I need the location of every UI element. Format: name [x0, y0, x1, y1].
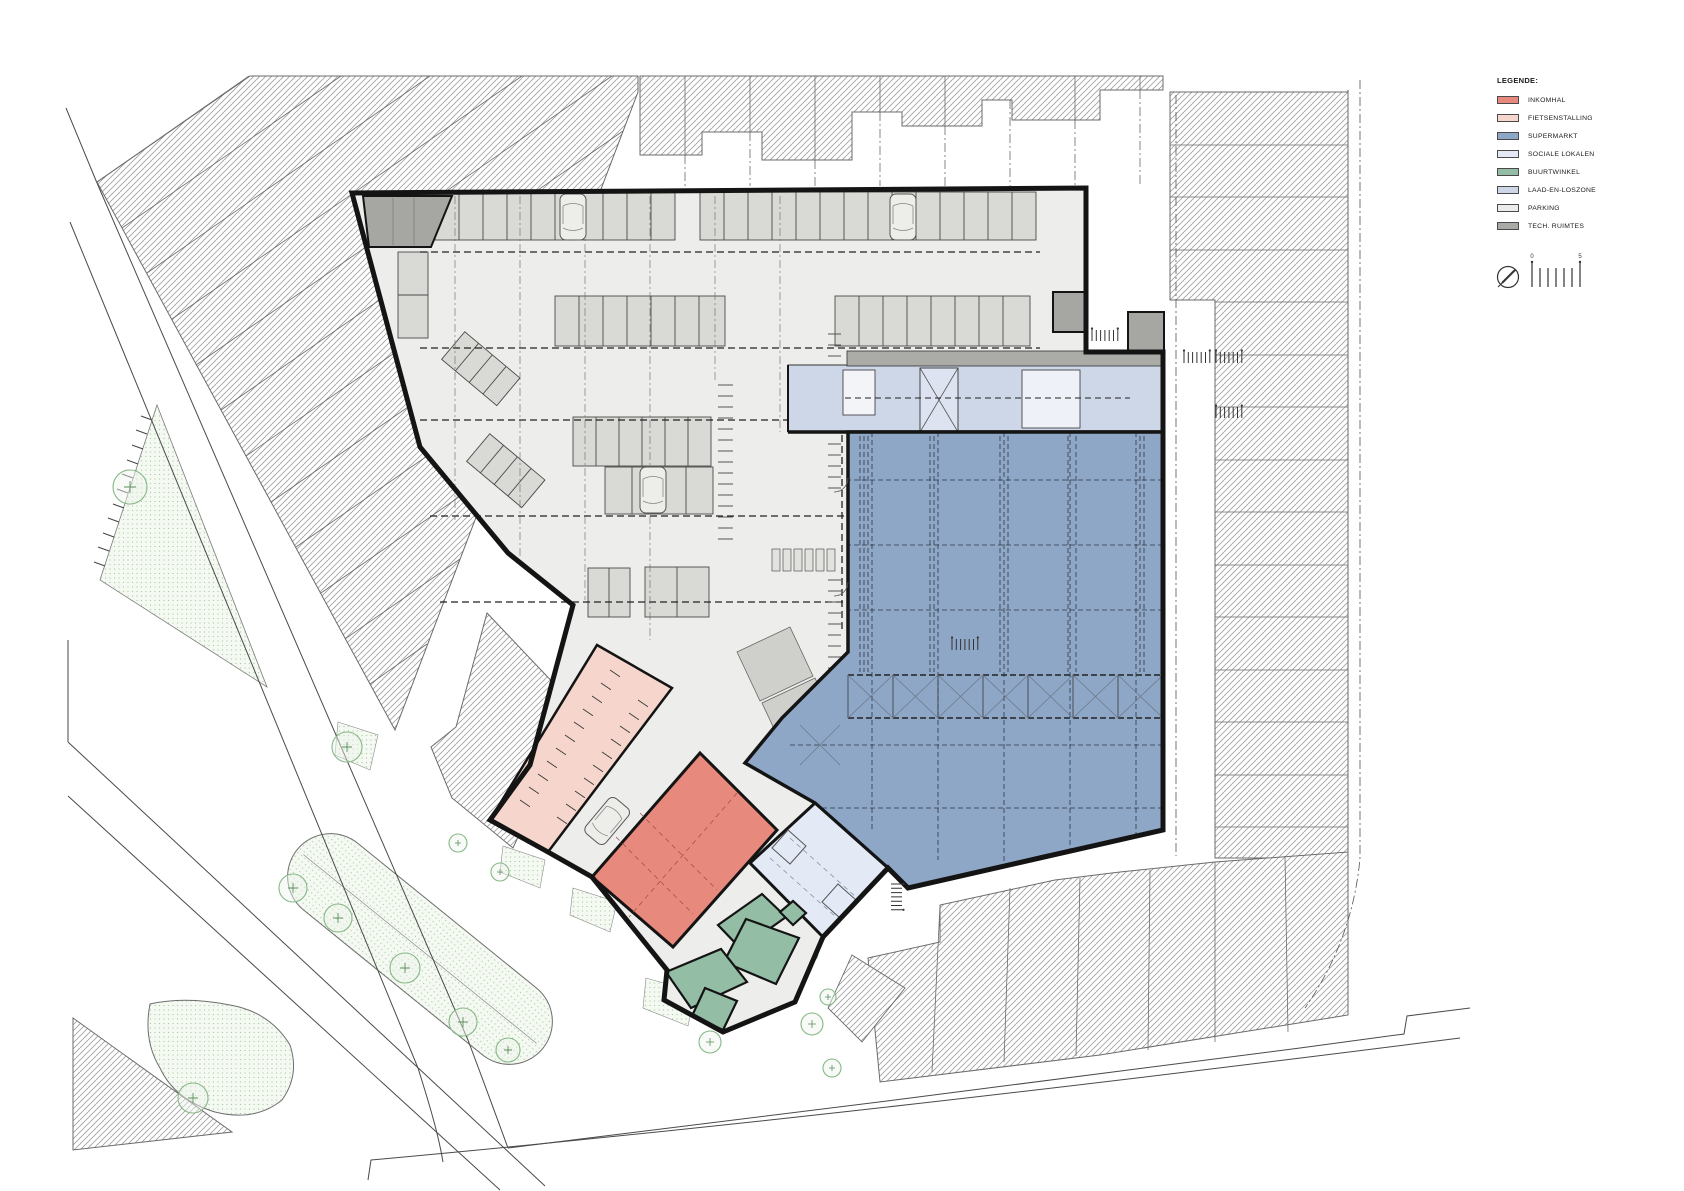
tree-icon	[801, 1013, 823, 1035]
tree-icon	[496, 1038, 520, 1062]
scale-bar: 0 5	[1530, 254, 1582, 287]
tree-icon	[491, 863, 509, 881]
legend-item-label: PARKING	[1528, 205, 1560, 212]
scale-tick-label: 0	[1530, 254, 1534, 260]
legend-item-label: BUURTWINKEL	[1528, 169, 1580, 176]
legend-item-label: SUPERMARKT	[1528, 133, 1578, 140]
legend-item-sociale-lokalen: SOCIALE LOKALEN	[1497, 150, 1682, 158]
legend-item-label: FIETSENSTALLING	[1528, 115, 1593, 122]
tree-icon	[324, 904, 352, 932]
legend-item-label: SOCIALE LOKALEN	[1528, 151, 1594, 158]
legend-item-buurtwinkel: BUURTWINKEL	[1497, 168, 1682, 176]
legend-swatch	[1497, 204, 1519, 212]
legend-swatch	[1497, 132, 1519, 140]
legend-swatch	[1497, 186, 1519, 194]
legend-item-parking: PARKING	[1497, 204, 1682, 212]
tree-icon	[390, 953, 420, 983]
tree-icon	[699, 1031, 721, 1053]
legend-swatch	[1497, 222, 1519, 230]
site-plan-drawing: 0 5	[0, 0, 1684, 1191]
tree-icon	[449, 1008, 477, 1036]
scale-tick-label: 5	[1578, 254, 1582, 260]
legend-item-inkomhal: INKOMHAL	[1497, 96, 1682, 104]
legend-item-laad-en-loszone: LAAD-EN-LOSZONE	[1497, 186, 1682, 194]
legend-item-supermarkt: SUPERMARKT	[1497, 132, 1682, 140]
site-plan-page: 0 5 LEGENDE: INKOMHAL FIETSENSTALLING SU…	[0, 0, 1684, 1191]
legend-item-tech-ruimtes: TECH. RUIMTES	[1497, 222, 1682, 230]
tree-icon	[178, 1083, 208, 1113]
legend-item-label: INKOMHAL	[1528, 97, 1566, 104]
tree-icon	[820, 989, 836, 1005]
legend-swatch	[1497, 114, 1519, 122]
legend: LEGENDE: INKOMHAL FIETSENSTALLING SUPERM…	[1497, 76, 1682, 240]
legend-swatch	[1497, 150, 1519, 158]
tree-icon	[279, 874, 307, 902]
tree-icon	[332, 732, 362, 762]
north-arrow-icon	[1498, 267, 1519, 288]
tree-icon	[823, 1059, 841, 1077]
tree-icon	[113, 470, 147, 504]
legend-item-fietsenstalling: FIETSENSTALLING	[1497, 114, 1682, 122]
legend-swatch	[1497, 96, 1519, 104]
legend-swatch	[1497, 168, 1519, 176]
legend-item-label: LAAD-EN-LOSZONE	[1528, 187, 1596, 194]
legend-item-label: TECH. RUIMTES	[1528, 223, 1584, 230]
tree-icon	[449, 834, 467, 852]
legend-title: LEGENDE:	[1497, 76, 1682, 85]
